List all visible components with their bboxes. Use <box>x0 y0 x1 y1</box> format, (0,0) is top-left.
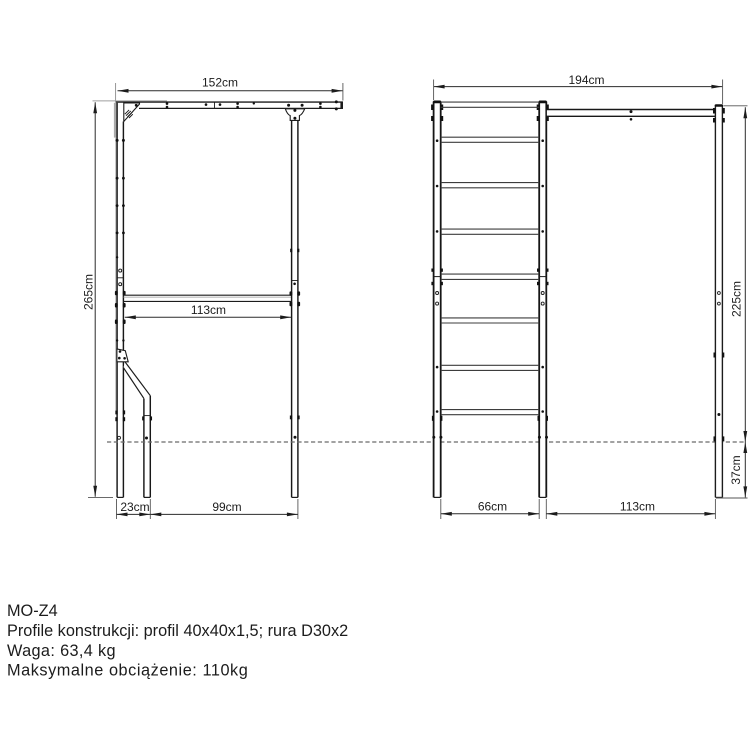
svg-text:Maksymalne obciążenie: 110kg: Maksymalne obciążenie: 110kg <box>7 661 248 679</box>
svg-text:37cm: 37cm <box>729 455 743 484</box>
svg-text:225cm: 225cm <box>729 281 743 317</box>
svg-text:99cm: 99cm <box>212 500 241 514</box>
svg-text:152cm: 152cm <box>202 75 238 89</box>
svg-text:Profile konstrukcji: profil 40: Profile konstrukcji: profil 40x40x1,5; r… <box>7 622 348 640</box>
svg-text:23cm: 23cm <box>120 500 149 514</box>
svg-text:66cm: 66cm <box>478 500 507 514</box>
svg-text:113cm: 113cm <box>191 303 226 317</box>
svg-text:194cm: 194cm <box>568 73 604 87</box>
svg-text:265cm: 265cm <box>82 274 96 310</box>
svg-text:113cm: 113cm <box>620 500 655 514</box>
svg-text:MO-Z4: MO-Z4 <box>7 602 58 620</box>
svg-text:Waga: 63,4 kg: Waga: 63,4 kg <box>7 642 116 660</box>
